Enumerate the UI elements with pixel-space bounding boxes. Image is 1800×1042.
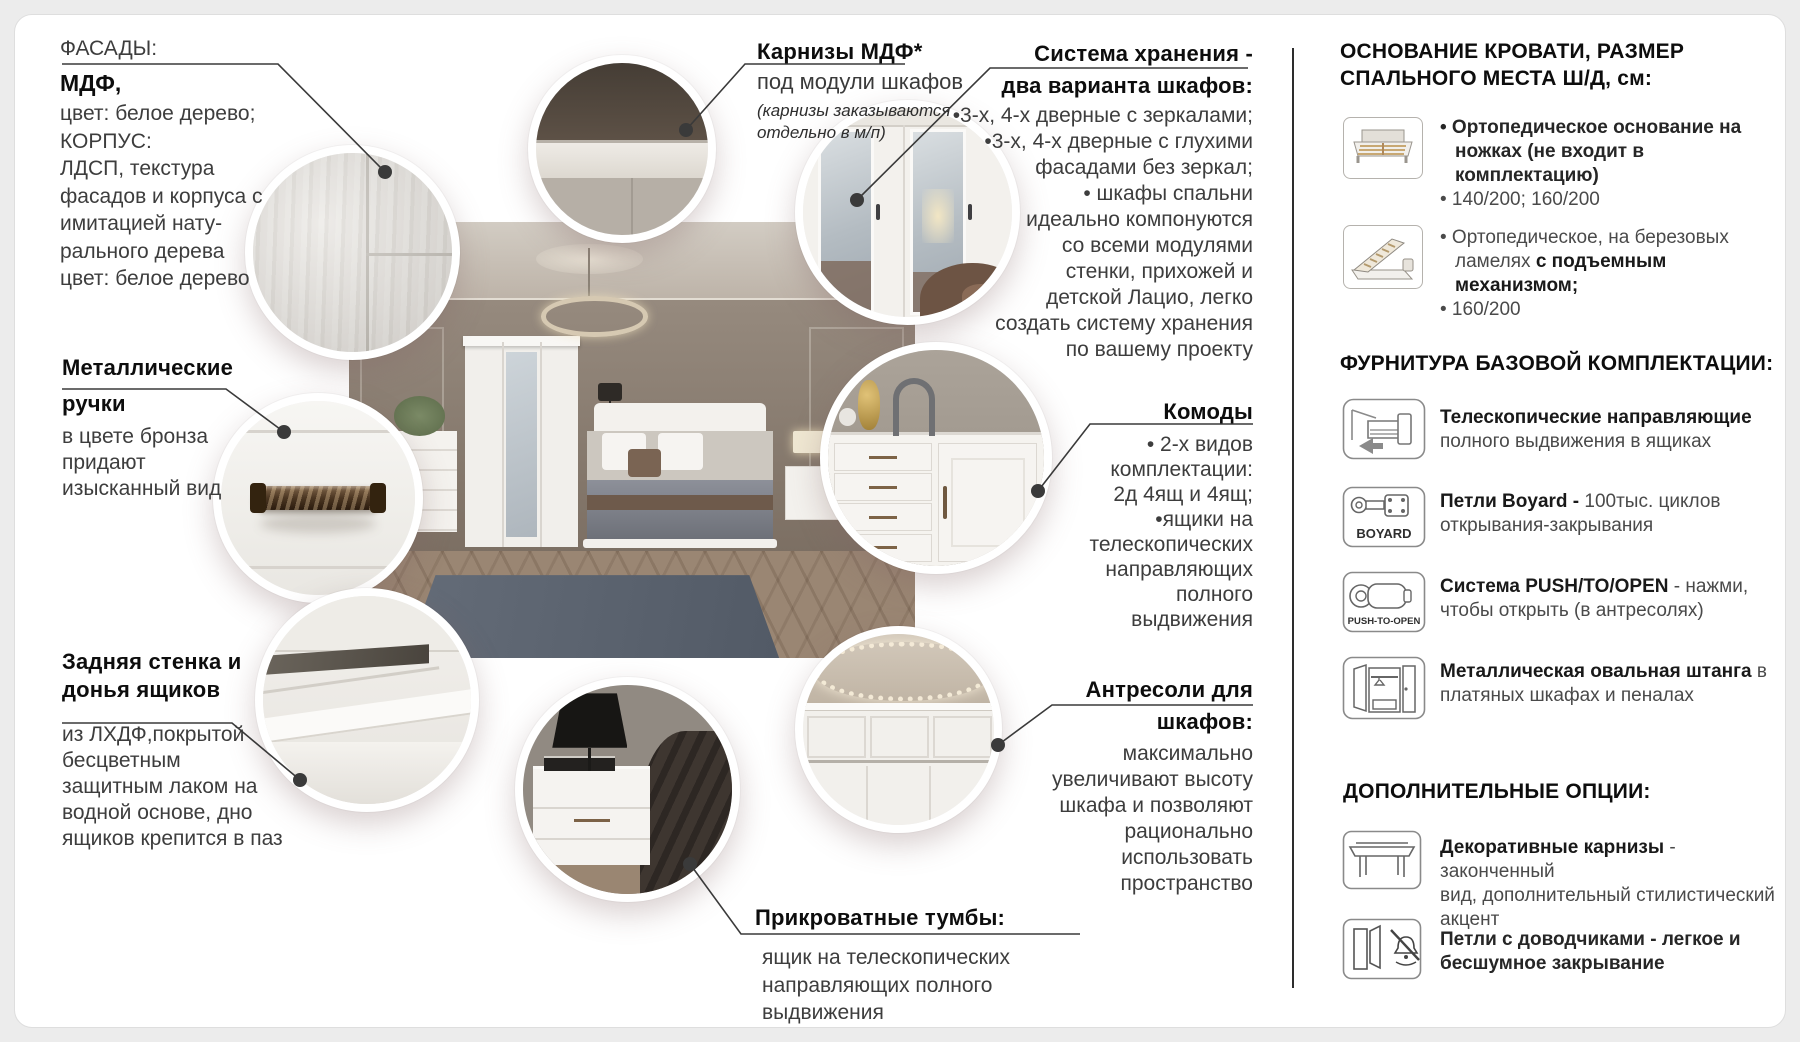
hardware-item-slides: Телескопические направляющие полного выд… xyxy=(1440,406,1785,454)
nightstands-title: Прикроватные тумбы: xyxy=(755,904,1115,932)
mdf-cornice-band xyxy=(536,140,708,178)
drawer xyxy=(834,443,931,471)
nightstands-description: ящик на телескопических направляющих пол… xyxy=(755,944,1115,1027)
door-seam xyxy=(631,178,633,235)
facades-title: МДФ, xyxy=(60,68,305,98)
soft-close-hinge-icon xyxy=(1342,918,1422,980)
handles-callout: Металлические ручки в цвете бронза прида… xyxy=(62,354,282,502)
floor-lamp-shade xyxy=(598,383,622,401)
amber-vase-decor xyxy=(858,380,880,430)
bed-frame xyxy=(583,539,777,548)
pillow xyxy=(658,433,703,470)
wardrobe-mirror-door xyxy=(506,352,538,536)
wardrobe xyxy=(465,342,578,547)
hardware-item-oval-rail: Металлическая овальная штанга в платяных… xyxy=(1440,660,1785,708)
drawer-handle xyxy=(869,456,898,459)
drawer-handle xyxy=(869,546,898,549)
bed-throw xyxy=(587,495,774,510)
door-handle xyxy=(943,486,947,519)
chandelier-cord xyxy=(588,248,590,296)
mezzanine-panel xyxy=(807,716,866,758)
mezzanine-panel xyxy=(870,716,929,758)
bed-item-lift: • Ортопедическое, на березовых ламелях с… xyxy=(1440,226,1785,322)
wardrobe-front-below xyxy=(536,178,708,235)
dark-bedding xyxy=(640,731,740,902)
drawer-seam xyxy=(533,807,650,809)
storage-callout: Система хранения - два варианта шкафов: … xyxy=(873,40,1253,363)
bed-lift-icon xyxy=(1342,224,1424,290)
bed-blanket xyxy=(587,480,774,540)
dark-room-background xyxy=(536,63,708,140)
black-lamp-shade xyxy=(552,693,627,747)
nightstand-body xyxy=(533,769,650,865)
back-wall-title-1: Задняя стенка и xyxy=(62,648,297,676)
cabinet-face xyxy=(263,596,471,652)
facades-description: цвет: белое дерево; КОРПУС: ЛДСП, тексту… xyxy=(60,100,305,293)
dressers-title: Комоды xyxy=(1013,398,1253,426)
dressers-description: • 2-х видов комплектации: 2д 4ящ и 4ящ; … xyxy=(1013,432,1253,632)
back-wall-callout: Задняя стенка и донья ящиков из ЛХДФ,пок… xyxy=(62,648,297,852)
boyard-hinge-icon: BOYARD xyxy=(1342,486,1426,548)
hardware-item-boyard: Петли Boyard - 100тыс. циклов открывания… xyxy=(1440,490,1785,538)
drawer-handle xyxy=(869,486,898,489)
options-item-cornices: Декоративные карнизы - законченный вид, … xyxy=(1440,836,1785,932)
cornice-closeup-photo-circle xyxy=(528,55,716,243)
drawer xyxy=(834,534,931,562)
door-seam xyxy=(540,342,542,547)
mirror-reflection xyxy=(821,261,871,311)
accent-pillow xyxy=(628,449,662,477)
cornice-edge-line xyxy=(536,140,708,143)
drawer xyxy=(834,503,931,531)
furniture-infographic-poster: ФАСАДЫ: МДФ, цвет: белое дерево; КОРПУС:… xyxy=(0,0,1800,1042)
books-on-top xyxy=(544,756,615,771)
storage-title-2: два варианта шкафов: xyxy=(873,72,1253,100)
options-section-title: ДОПОЛНИТЕЛЬНЫЕ ОПЦИИ: xyxy=(1343,778,1783,805)
storage-title-1: Система хранения - xyxy=(873,40,1253,68)
nightstand-photo-circle xyxy=(515,677,740,902)
door-seam xyxy=(866,766,868,825)
drawer-seam xyxy=(533,838,650,840)
boyard-badge-label: BOYARD xyxy=(1356,526,1411,541)
bed-base-section-title: ОСНОВАНИЕ КРОВАТИ, РАЗМЕР СПАЛЬНОГО МЕСТ… xyxy=(1340,38,1780,92)
wardrobe-cornice xyxy=(463,336,581,346)
drawer xyxy=(834,473,931,501)
mezzanines-title-2: шкафов: xyxy=(953,708,1253,736)
hardware-section-title: ФУРНИТУРА БАЗОВОЙ КОМПЛЕКТАЦИИ: xyxy=(1340,350,1780,377)
mezzanines-callout: Антресоли для шкафов: максимально увелич… xyxy=(953,676,1253,897)
facades-callout: ФАСАДЫ: МДФ, цвет: белое дерево; КОРПУС:… xyxy=(60,36,305,293)
ring-chandelier xyxy=(541,296,647,337)
decorative-cornice-icon xyxy=(1342,830,1422,890)
handles-description: в цвете бронза придают изысканный вид xyxy=(62,424,282,502)
bed xyxy=(587,431,774,540)
mezzanines-title-1: Антресоли для xyxy=(953,676,1253,704)
nightstands-callout: Прикроватные тумбы: ящик на телескопичес… xyxy=(755,904,1115,1027)
drawer-seam xyxy=(221,566,415,569)
door-seam xyxy=(929,766,931,825)
handle-end-cap xyxy=(370,483,386,512)
back-wall-description: из ЛХДФ,покрытой бесцветным защитным лак… xyxy=(62,722,297,852)
facades-label: ФАСАДЫ: xyxy=(60,36,305,62)
options-item-soft-close: Петли с доводчиками - легкое и бесшумное… xyxy=(1440,928,1785,976)
arch-decor xyxy=(893,378,935,436)
mirror-strip-left xyxy=(818,129,874,315)
oval-rail-wardrobe-icon xyxy=(1342,656,1426,720)
sidebar-divider xyxy=(1292,48,1294,988)
push-to-open-icon: PUSH-TO-OPEN xyxy=(1342,571,1426,633)
handles-title-2: ручки xyxy=(62,390,282,418)
hardware-item-push-to-open: Система PUSH/TO/OPEN - нажми, чтобы откр… xyxy=(1440,575,1785,623)
push-to-open-badge-label: PUSH-TO-OPEN xyxy=(1348,616,1421,627)
back-wall-title-2: донья ящиков xyxy=(62,676,297,704)
drawer-slides-icon xyxy=(1342,398,1426,460)
drawer-handle xyxy=(869,516,898,519)
handle-shadow xyxy=(260,514,376,533)
sphere-decor xyxy=(839,408,856,425)
bed-orthopedic-icon xyxy=(1342,116,1424,180)
door-seam xyxy=(502,342,504,547)
handles-title-1: Металлические xyxy=(62,354,282,382)
bed-item-orthopedic: • Ортопедическое основание на ножках (не… xyxy=(1440,116,1785,212)
lamp-pole xyxy=(588,748,591,771)
drawer-handle xyxy=(574,819,609,822)
dressers-callout: Комоды • 2-х видов комплектации: 2д 4ящ … xyxy=(1013,398,1253,632)
storage-description: •3-х, 4-х дверные с зеркалами; •3-х, 4-х… xyxy=(873,103,1253,363)
mezzanines-description: максимально увеличивают высоту шкафа и п… xyxy=(953,741,1253,897)
